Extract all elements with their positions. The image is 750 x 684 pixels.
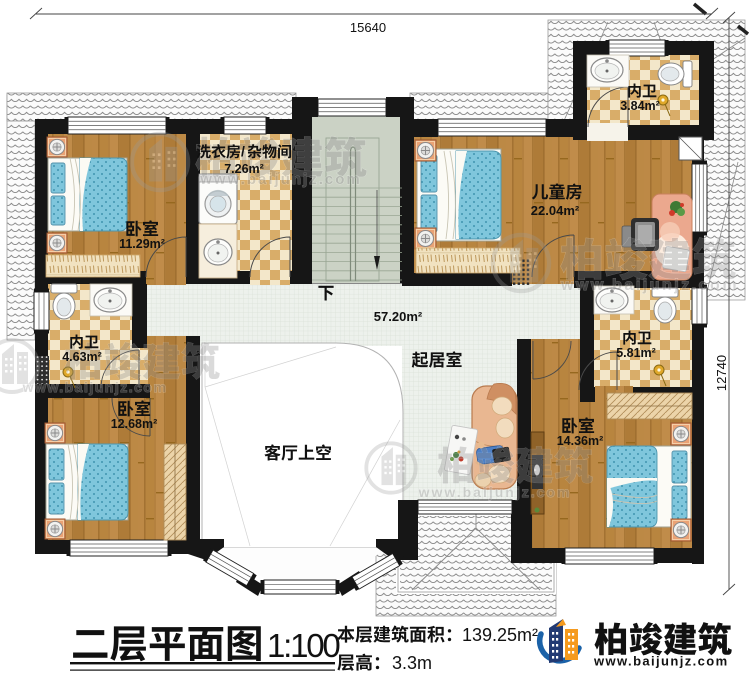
svg-text:3.84m²: 3.84m²: [620, 99, 660, 113]
svg-text:57.20m²: 57.20m²: [374, 309, 423, 324]
svg-text:3.3m: 3.3m: [392, 653, 432, 673]
svg-text:1:100: 1:100: [267, 627, 340, 664]
svg-text:11.29m²: 11.29m²: [119, 237, 165, 251]
svg-text:www.baijunjz.com: www.baijunjz.com: [593, 654, 729, 669]
svg-text:4.63m²: 4.63m²: [62, 350, 102, 364]
svg-text:www.baijunjz.com: www.baijunjz.com: [418, 484, 572, 500]
svg-text:139.25m²: 139.25m²: [462, 625, 538, 645]
svg-text:/: /: [241, 143, 245, 159]
svg-text:14.36m²: 14.36m²: [557, 434, 604, 448]
svg-text:12740: 12740: [714, 355, 729, 391]
svg-text:www.baijunjz.com: www.baijunjz.com: [560, 277, 739, 294]
svg-text:22.04m²: 22.04m²: [531, 203, 580, 218]
svg-text:15640: 15640: [350, 20, 386, 35]
svg-text:5.81m²: 5.81m²: [616, 346, 656, 360]
svg-text:www.baijunjz.com: www.baijunjz.com: [22, 379, 168, 395]
svg-text:12.68m²: 12.68m²: [111, 417, 158, 431]
svg-text:7.26m²: 7.26m²: [224, 162, 264, 176]
